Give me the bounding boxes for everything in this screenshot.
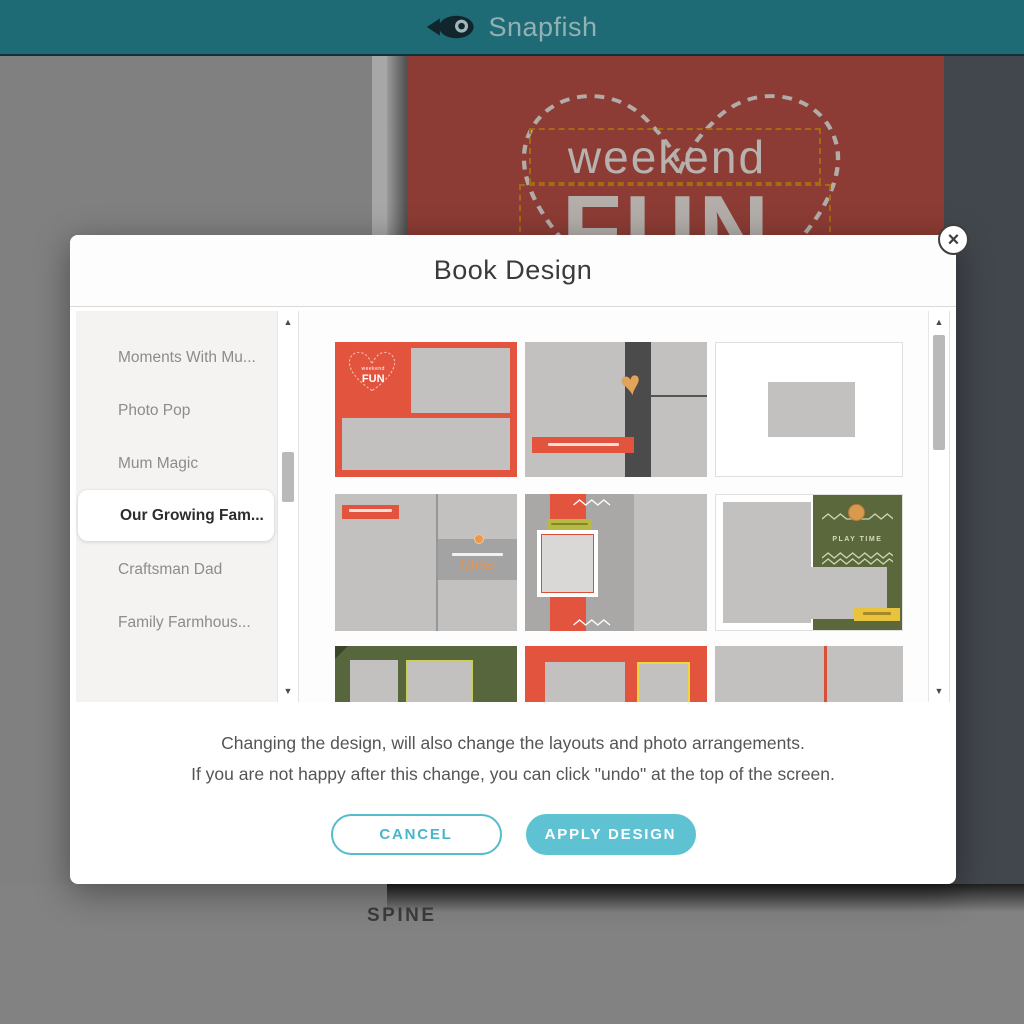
illegible-micro-text [452,553,503,556]
mini-title-fun: FUN [335,373,411,385]
thumbnail-stripe-heart[interactable]: ♥ [525,342,707,477]
design-list: Moments With Mu... Photo Pop Mum Magic O… [76,311,277,702]
modal-body: Moments With Mu... Photo Pop Mum Magic O… [70,307,956,706]
scrollbar-thumb[interactable] [933,335,945,450]
thumbnail-single-photo[interactable] [715,342,903,477]
photo-placeholder [768,382,855,438]
photo-placeholder [406,660,473,703]
brand-name: Snapfish [488,12,597,43]
warning-note-line1: Changing the design, will also change th… [70,728,956,759]
scroll-up-icon[interactable]: ▲ [278,317,298,327]
design-item-mum-magic[interactable]: Mum Magic [76,437,277,490]
caption-banner [532,437,634,453]
folded-corner [335,646,348,659]
modal-title: Book Design [434,255,593,286]
illegible-micro-text [863,612,891,615]
zigzag-stitch-icon [525,499,707,506]
photo-placeholder [545,662,625,702]
caption-label [547,519,593,531]
apply-design-button[interactable]: APPLY DESIGN [526,814,696,855]
close-icon[interactable]: × [938,224,969,255]
app-header: Snapfish [0,0,1024,56]
book-design-modal: × Book Design Moments With Mu... Photo P… [70,235,956,884]
design-list-scrollbar[interactable]: ▲ ▼ [277,311,299,702]
thumbnails-scrollbar[interactable]: ▲ ▼ [928,311,950,702]
scroll-down-icon[interactable]: ▼ [278,686,298,696]
design-item-moments-with-mum[interactable]: Moments With Mu... [76,331,277,384]
thumbnail-green-two-photos[interactable] [335,646,517,702]
badge-dot-icon [474,534,484,544]
warning-note-line2: If you are not happy after this change, … [70,759,956,790]
zigzag-stitch-icon [822,558,893,566]
fish-icon [426,12,478,42]
red-divider-line [824,646,827,702]
design-item-family-farmhouse[interactable]: Family Farmhous... [76,596,277,649]
dark-stripe [625,342,650,477]
photo-placeholder [541,534,594,593]
spine-label: SPINE [367,905,437,927]
thumbnail-red-two-photos[interactable] [525,646,707,702]
book-back-panel [944,56,1024,884]
mini-title-weekend: weekend [335,366,411,372]
screen: weekend FUN SPINE Snapfish × Book Design… [0,0,1024,1024]
illegible-micro-text [548,443,619,446]
caption-band: fairies [438,539,517,580]
button-row: CANCEL APPLY DESIGN [70,814,956,855]
design-thumbnails-panel: weekend FUN ♥ [299,311,928,702]
modal-header: Book Design [70,235,956,307]
photo-placeholder [411,348,509,413]
thumbnail-play-time[interactable]: PLAY TIME [715,494,903,631]
scrollbar-thumb[interactable] [282,452,294,502]
zigzag-stitch-icon [525,619,707,626]
design-item-photo-pop[interactable]: Photo Pop [76,384,277,437]
cancel-button[interactable]: CANCEL [331,814,502,855]
design-item-craftsman-dad[interactable]: Craftsman Dad [76,543,277,596]
photo-frame [537,530,598,597]
page-right-half [634,494,707,631]
modal-footer: Changing the design, will also change th… [70,706,956,884]
photo-placeholder [350,660,397,703]
caption-tag [342,505,398,519]
thumbnail-gray-divider[interactable] [715,646,903,702]
mini-cover-block: weekend FUN [335,342,411,416]
thumbnail-red-cover[interactable]: weekend FUN [335,342,517,477]
scroll-up-icon[interactable]: ▲ [929,317,949,327]
yellow-tag [854,608,901,620]
design-item-our-growing-family-selected[interactable]: Our Growing Fam... [78,490,274,541]
photo-placeholder [637,662,690,702]
illegible-micro-text [551,523,587,526]
fairies-caption: fairies [438,558,517,574]
illegible-micro-text [349,509,392,512]
rule-line [651,395,707,397]
scroll-down-icon[interactable]: ▼ [929,686,949,696]
thumbnail-ribbon-frame[interactable] [525,494,707,631]
thumbnail-fairies[interactable]: fairies [335,494,517,631]
book-bottom-shadow [387,884,1024,912]
play-time-caption: PLAY TIME [813,536,902,543]
photo-placeholder [342,418,509,471]
